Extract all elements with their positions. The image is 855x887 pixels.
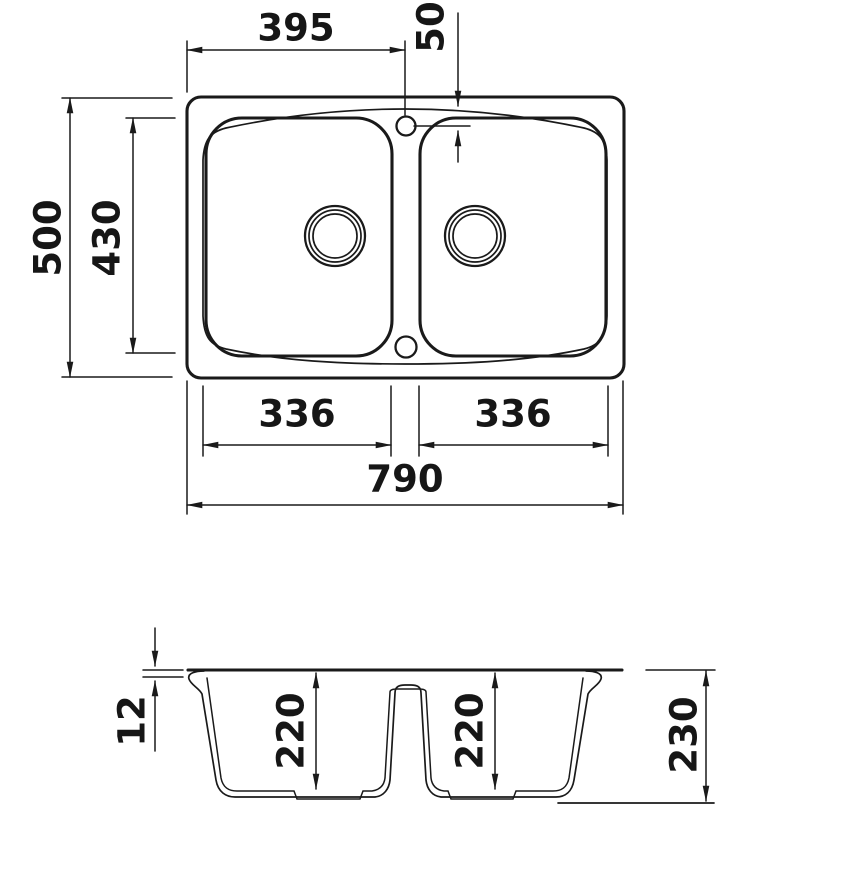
dim-label-500: 500 xyxy=(27,199,70,276)
dim-right-bowl-width: 336 xyxy=(419,386,608,456)
dim-label-50: 50 xyxy=(410,1,453,53)
faucet-hole xyxy=(397,117,416,136)
top-view: 395 50 500 430 336 xyxy=(27,1,625,514)
section-view: 12 220 220 230 xyxy=(111,628,716,803)
dim-width-to-faucet: 395 xyxy=(187,7,405,116)
dim-label-790: 790 xyxy=(366,458,443,501)
rim-inner-outline xyxy=(203,109,607,364)
dim-right-bowl-depth: 220 xyxy=(449,673,496,789)
dim-faucet-from-top: 50 xyxy=(410,1,471,162)
dim-bowl-length: 430 xyxy=(86,118,176,353)
dim-label-220-left: 220 xyxy=(270,692,313,769)
dim-label-395: 395 xyxy=(257,7,334,50)
overflow-hole xyxy=(396,337,417,358)
dim-label-336-left: 336 xyxy=(258,393,335,436)
dim-left-bowl-width: 336 xyxy=(203,386,391,456)
dim-label-430: 430 xyxy=(86,199,129,276)
dim-label-12: 12 xyxy=(111,695,154,747)
technical-drawing-page: 395 50 500 430 336 xyxy=(0,0,855,887)
dim-label-230: 230 xyxy=(663,696,706,773)
dim-rim-thickness: 12 xyxy=(111,628,184,751)
left-drain xyxy=(305,206,365,266)
section-outer-profile xyxy=(189,671,602,797)
dim-left-bowl-depth: 220 xyxy=(270,673,317,789)
dim-label-336-right: 336 xyxy=(474,393,551,436)
right-drain xyxy=(445,206,505,266)
sink-technical-drawing: 395 50 500 430 336 xyxy=(0,0,855,887)
dim-label-220-right: 220 xyxy=(449,692,492,769)
right-bowl-outline xyxy=(420,118,606,356)
dim-overall-height: 230 xyxy=(646,670,715,801)
dim-overall-width: 790 xyxy=(187,381,623,514)
